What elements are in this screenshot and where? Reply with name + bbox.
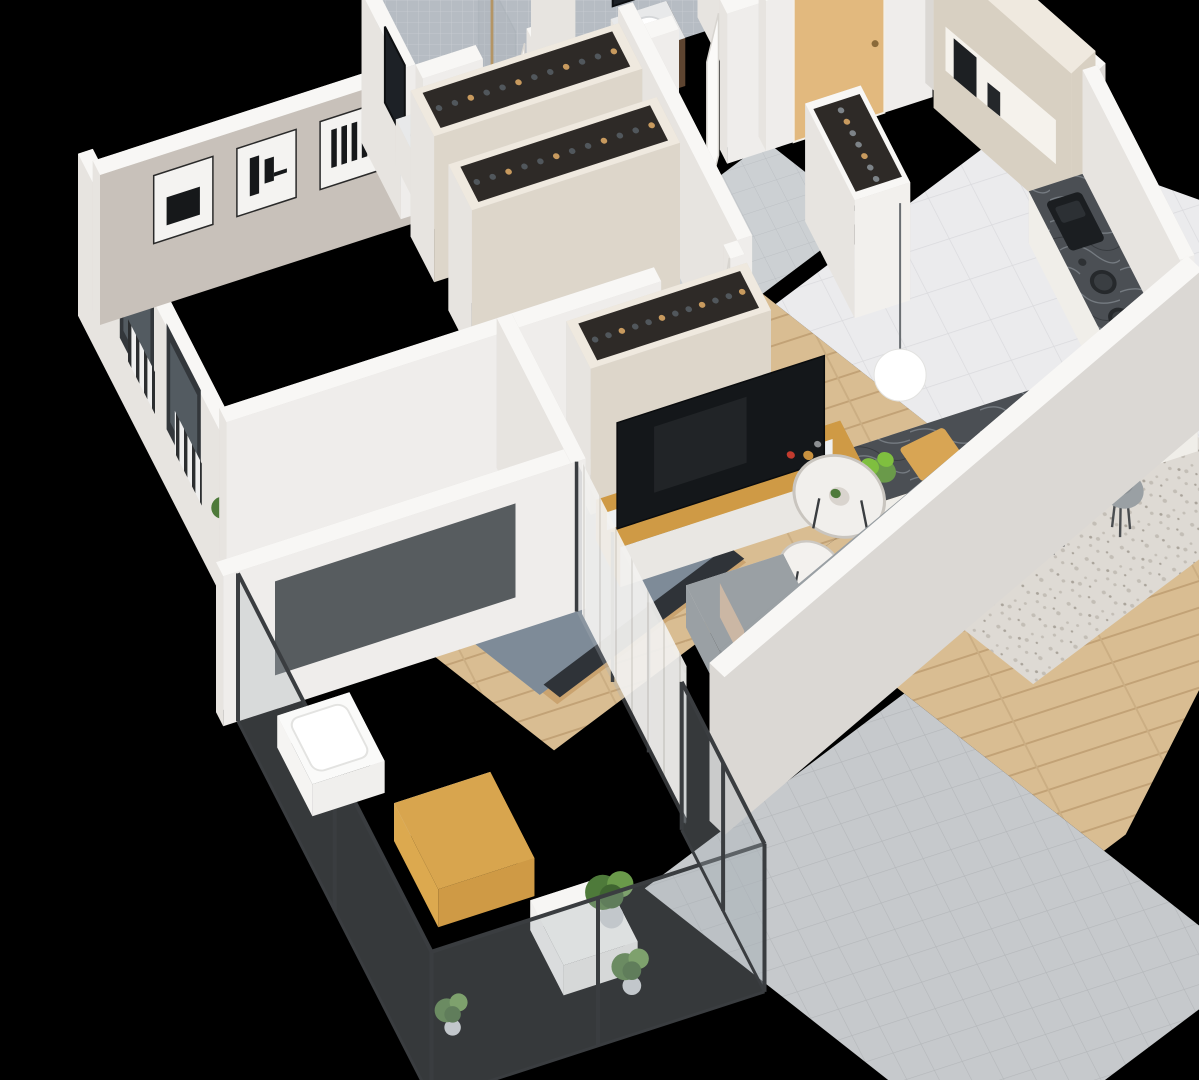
floorplan-render (0, 0, 1199, 1080)
apartment-3d-scene (0, 0, 1199, 1080)
balcony-table (394, 772, 534, 927)
